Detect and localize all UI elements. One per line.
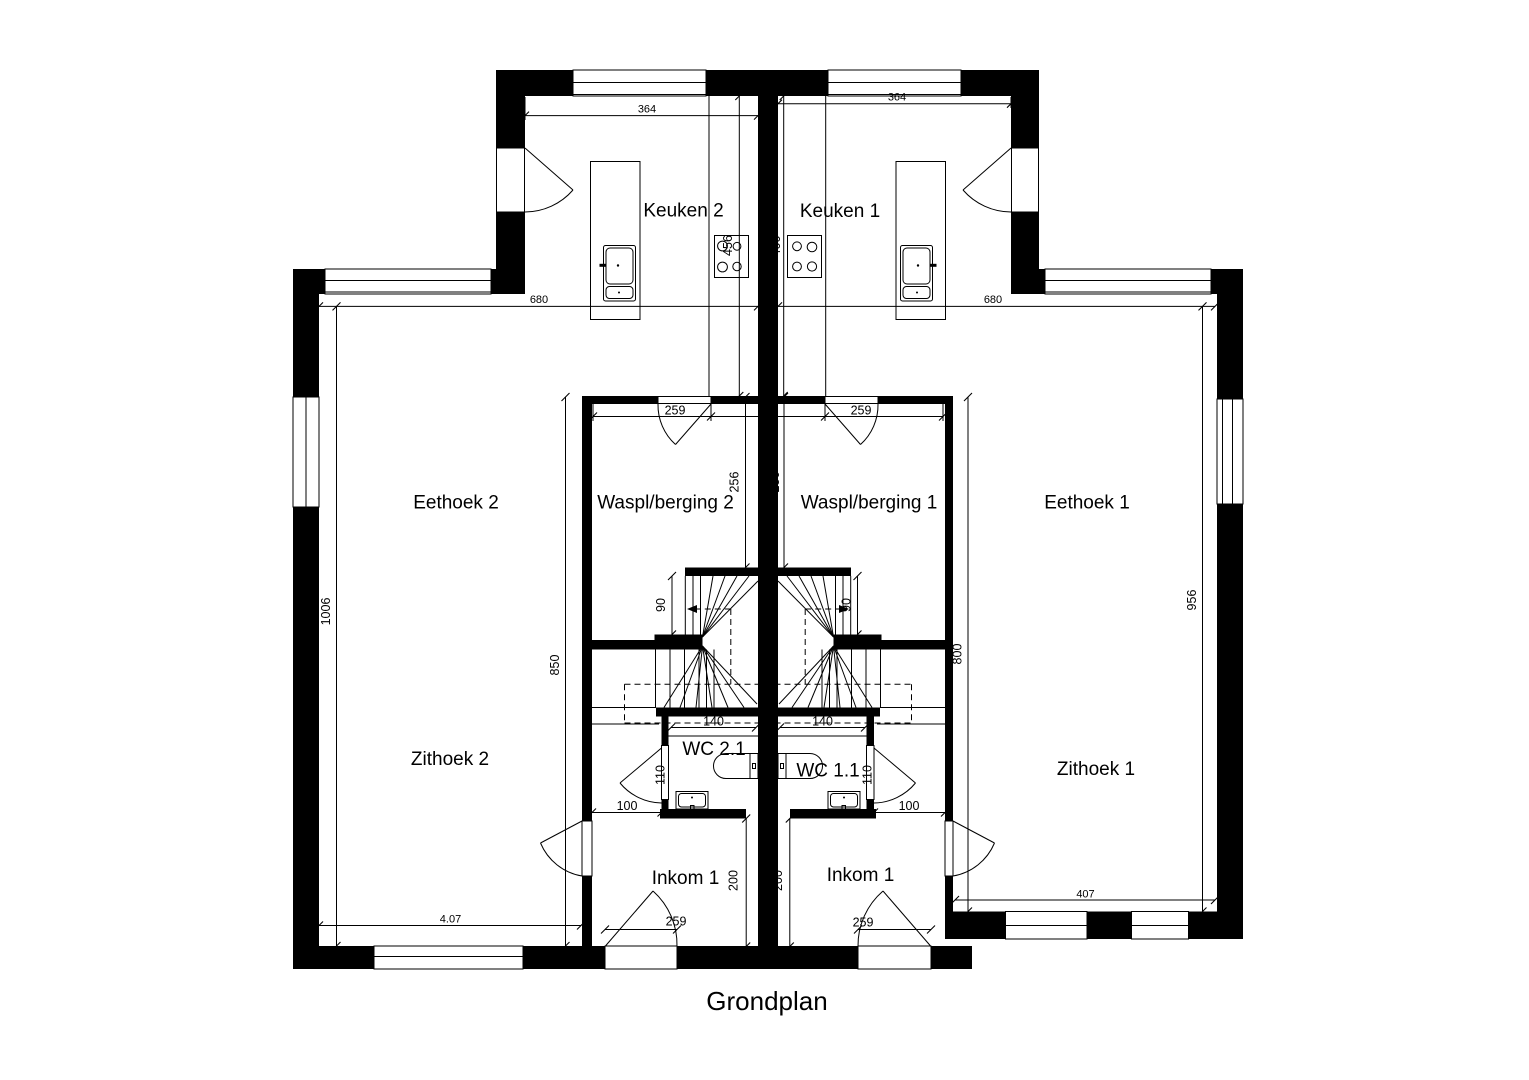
svg-text:110: 110 (861, 765, 875, 785)
svg-text:Inkom 1: Inkom 1 (827, 865, 895, 886)
svg-text:400: 400 (769, 236, 783, 257)
svg-text:Zithoek 1: Zithoek 1 (1057, 759, 1135, 780)
svg-text:Grondplan: Grondplan (706, 986, 827, 1016)
svg-text:680: 680 (530, 294, 548, 306)
svg-text:259: 259 (666, 915, 687, 929)
svg-text:4.07: 4.07 (440, 914, 461, 926)
svg-text:140: 140 (812, 715, 833, 729)
svg-text:Inkom 1: Inkom 1 (652, 868, 720, 889)
svg-text:1006: 1006 (319, 598, 333, 626)
svg-text:680: 680 (984, 294, 1002, 306)
svg-text:90: 90 (654, 598, 668, 612)
svg-text:200: 200 (727, 870, 741, 891)
svg-text:956: 956 (1185, 590, 1199, 611)
svg-text:140: 140 (703, 715, 724, 729)
svg-text:256: 256 (768, 472, 782, 493)
svg-text:Eethoek 1: Eethoek 1 (1044, 493, 1130, 514)
svg-text:259: 259 (665, 404, 686, 418)
svg-text:850: 850 (548, 655, 562, 676)
svg-text:259: 259 (851, 404, 872, 418)
svg-text:WC 1.1: WC 1.1 (796, 761, 859, 782)
svg-text:Keuken 1: Keuken 1 (800, 201, 880, 222)
svg-text:407: 407 (1076, 889, 1094, 901)
svg-text:364: 364 (888, 92, 906, 104)
svg-text:456: 456 (721, 235, 735, 256)
svg-text:800: 800 (951, 644, 965, 665)
svg-text:Waspl/berging 1: Waspl/berging 1 (801, 493, 938, 514)
svg-text:Zithoek 2: Zithoek 2 (411, 749, 489, 770)
svg-text:100: 100 (617, 799, 638, 813)
svg-text:WC 2.1: WC 2.1 (682, 739, 745, 760)
svg-text:Eethoek 2: Eethoek 2 (413, 493, 499, 514)
svg-text:Keuken 2: Keuken 2 (643, 201, 723, 222)
svg-text:200: 200 (771, 870, 785, 891)
svg-text:90: 90 (840, 598, 854, 612)
svg-text:100: 100 (899, 799, 920, 813)
svg-text:110: 110 (654, 765, 668, 785)
svg-text:256: 256 (728, 472, 742, 493)
svg-text:259: 259 (853, 916, 874, 930)
svg-text:Waspl/berging 2: Waspl/berging 2 (597, 493, 734, 514)
svg-text:364: 364 (638, 104, 656, 116)
